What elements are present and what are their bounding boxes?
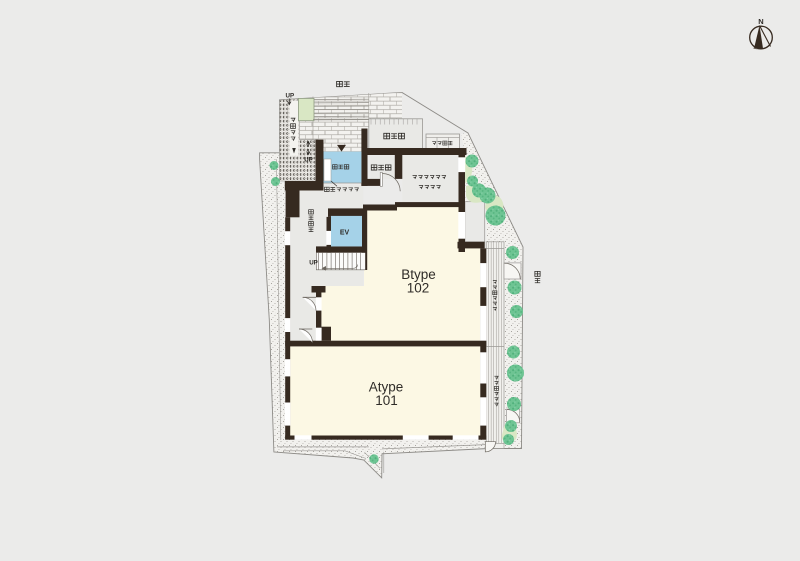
- svg-text:101: 101: [375, 393, 398, 408]
- svg-text:UP: UP: [304, 157, 313, 164]
- svg-text:N: N: [758, 17, 763, 26]
- svg-text:UP: UP: [309, 260, 318, 267]
- svg-text:UP: UP: [285, 92, 294, 99]
- svg-text:EV: EV: [340, 230, 350, 237]
- svg-text:102: 102: [407, 281, 430, 296]
